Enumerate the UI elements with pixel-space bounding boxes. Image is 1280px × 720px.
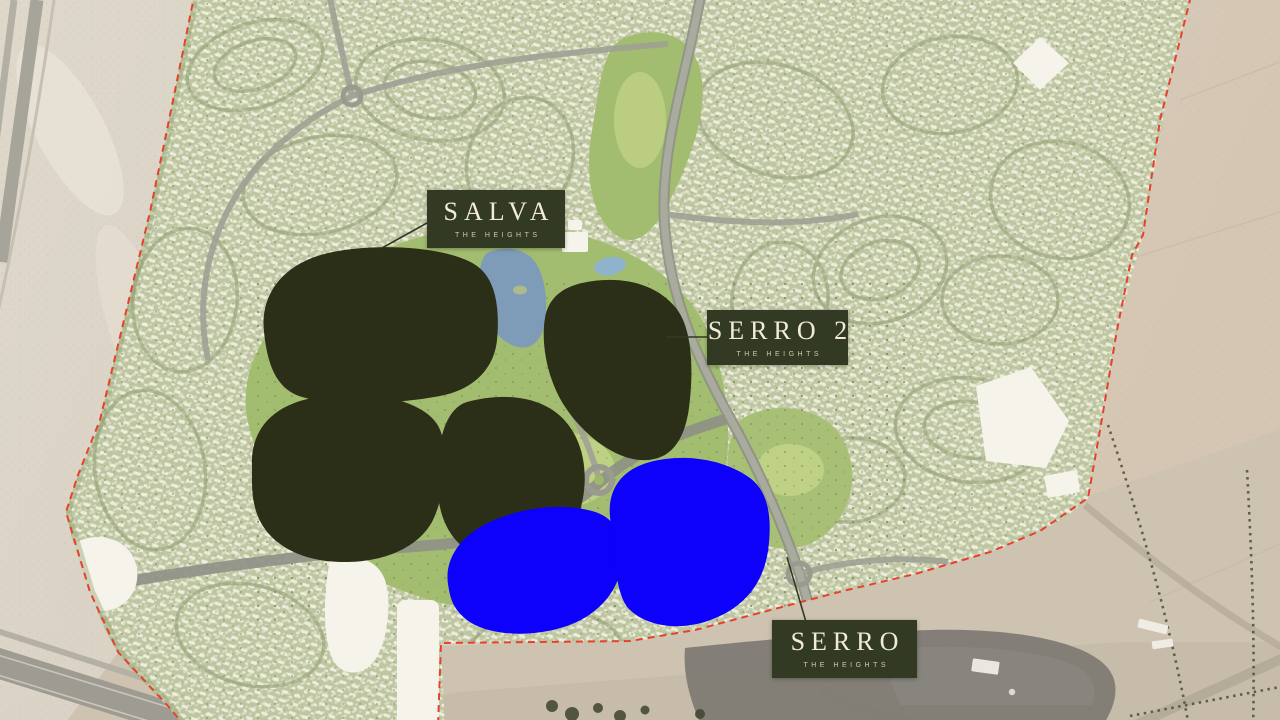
serro2-area-title: SERRO 2 — [702, 318, 853, 344]
salva-zone-blob-nw[interactable] — [264, 247, 498, 403]
serro2-area-label[interactable]: SERRO 2 THE HEIGHTS — [707, 310, 848, 365]
salva-area-subtitle: THE HEIGHTS — [451, 232, 540, 239]
salva-area-label[interactable]: SALVA THE HEIGHTS — [427, 190, 565, 248]
serro-area-subtitle: THE HEIGHTS — [800, 662, 889, 669]
salva-zone-blob-sw[interactable] — [252, 394, 445, 562]
masterplan-map: SALVA THE HEIGHTS SERRO 2 THE HEIGHTS SE… — [0, 0, 1280, 720]
serro-area-title: SERRO — [785, 629, 905, 655]
serro-area-label[interactable]: SERRO THE HEIGHTS — [772, 620, 917, 678]
salva-area-title: SALVA — [438, 199, 555, 225]
map-canvas — [0, 0, 1280, 720]
serro2-area-subtitle: THE HEIGHTS — [733, 351, 822, 358]
